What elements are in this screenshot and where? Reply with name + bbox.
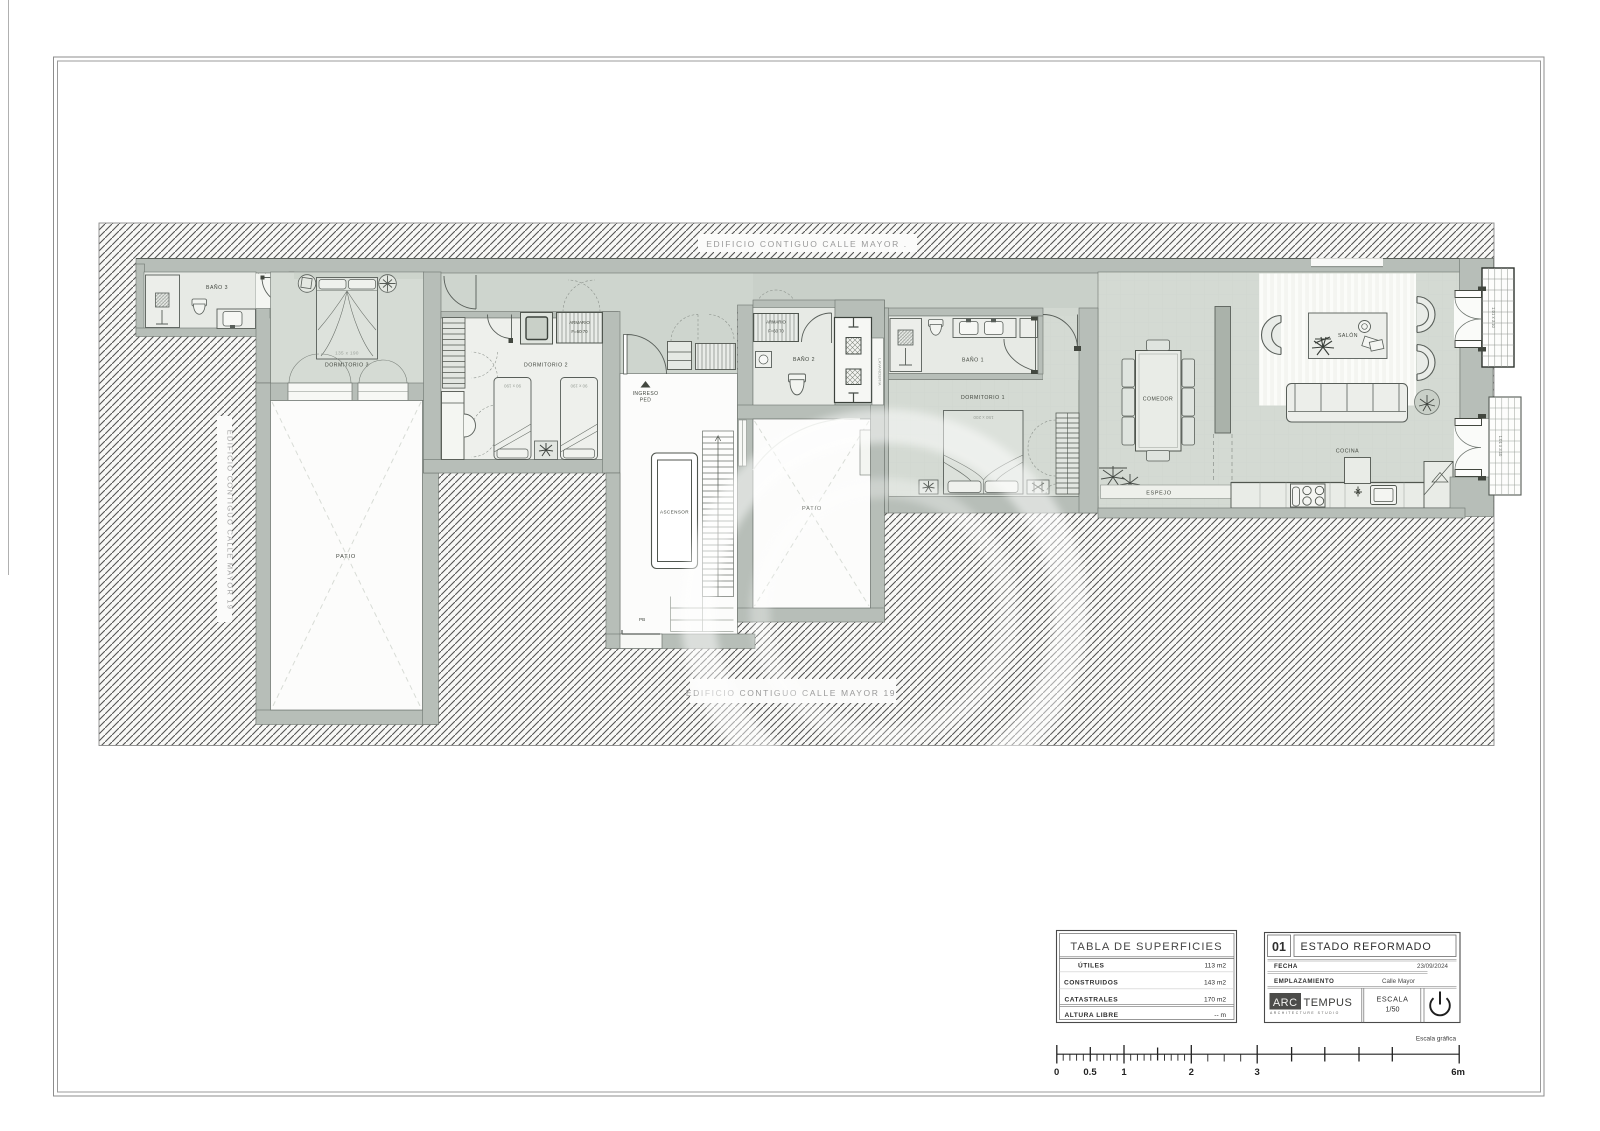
svg-text:BAÑO 3: BAÑO 3 <box>206 284 228 291</box>
svg-text:ARCHITECTURE STUDIO: ARCHITECTURE STUDIO <box>1270 1011 1340 1015</box>
svg-text:23/09/2024: 23/09/2024 <box>1417 963 1449 970</box>
svg-text:113 m2: 113 m2 <box>1204 963 1226 970</box>
svg-text:1.01 x 3.10: 1.01 x 3.10 <box>1491 307 1496 328</box>
svg-text:1: 1 <box>1121 1067 1127 1078</box>
svg-text:ESTADO REFORMADO: ESTADO REFORMADO <box>1301 941 1432 953</box>
svg-text:6m: 6m <box>1451 1067 1465 1078</box>
svg-text:0.5: 0.5 <box>1083 1067 1097 1078</box>
svg-text:ÚTILES: ÚTILES <box>1078 961 1105 970</box>
svg-text:-- m: -- m <box>1214 1012 1226 1019</box>
svg-text:LAVANDERIA: LAVANDERIA <box>878 358 883 386</box>
svg-text:90 x 190: 90 x 190 <box>570 384 587 389</box>
svg-text:143 m2: 143 m2 <box>1204 980 1226 987</box>
svg-text:F=60 70: F=60 70 <box>768 329 784 334</box>
svg-text:DORMITORIO 2: DORMITORIO 2 <box>524 363 568 369</box>
svg-text:INGRESO: INGRESO <box>633 391 659 397</box>
svg-text:Calle Mayor: Calle Mayor <box>1382 978 1415 985</box>
svg-text:ARMARIO: ARMARIO <box>569 320 590 325</box>
svg-text:ARC: ARC <box>1273 997 1298 1009</box>
svg-text:TEMPUS: TEMPUS <box>1304 997 1353 1009</box>
svg-text:ASCENSOR: ASCENSOR <box>660 510 689 515</box>
svg-text:2: 2 <box>1189 1067 1194 1078</box>
svg-text:135 x 190: 135 x 190 <box>335 351 359 356</box>
svg-text:PATIO: PATIO <box>336 554 356 560</box>
svg-text:1.01 x 3.10: 1.01 x 3.10 <box>1498 436 1503 457</box>
svg-text:0: 0 <box>1054 1067 1059 1078</box>
svg-text:01: 01 <box>1272 940 1286 954</box>
svg-text:PED: PED <box>640 398 651 404</box>
svg-text:EMPLAZAMIENTO: EMPLAZAMIENTO <box>1274 978 1334 985</box>
svg-text:COMEDOR: COMEDOR <box>1143 397 1174 403</box>
svg-text:EDIFICIO CONTIGUO CALLE MAYOR: EDIFICIO CONTIGUO CALLE MAYOR . <box>706 239 908 249</box>
svg-text:170 m2: 170 m2 <box>1204 997 1226 1004</box>
svg-text:150 x 200: 150 x 200 <box>973 415 994 420</box>
svg-text:1/50: 1/50 <box>1386 1005 1400 1014</box>
svg-text:SALÓN: SALÓN <box>1338 332 1358 339</box>
svg-text:CATASTRALES: CATASTRALES <box>1065 997 1119 1004</box>
svg-text:FECHA: FECHA <box>1274 963 1298 970</box>
svg-text:Escala gráfica: Escala gráfica <box>1416 1036 1457 1043</box>
svg-text:ESPEJO: ESPEJO <box>1146 491 1171 497</box>
svg-text:ALTURA LIBRE: ALTURA LIBRE <box>1065 1012 1119 1019</box>
svg-text:ARMARIO: ARMARIO <box>766 320 786 325</box>
svg-text:DORMITORIO 1: DORMITORIO 1 <box>961 395 1005 401</box>
svg-text:COCINA: COCINA <box>1336 449 1359 455</box>
svg-text:TABLA DE SUPERFICIES: TABLA DE SUPERFICIES <box>1070 941 1222 953</box>
svg-text:3: 3 <box>1255 1067 1260 1078</box>
svg-text:DORMITORIO 3: DORMITORIO 3 <box>325 363 369 369</box>
svg-text:ESCALA: ESCALA <box>1377 995 1409 1004</box>
svg-text:PB: PB <box>639 617 645 622</box>
svg-text:F=60 70: F=60 70 <box>571 329 588 334</box>
svg-text:EDIFICIO CONTIGUO CALLE MAYOR: EDIFICIO CONTIGUO CALLE MAYOR 19 <box>226 430 235 610</box>
svg-text:90 x 190: 90 x 190 <box>504 384 521 389</box>
svg-text:BAÑO 1: BAÑO 1 <box>962 357 984 364</box>
svg-text:BAÑO 2: BAÑO 2 <box>793 356 815 363</box>
svg-text:CONSTRUIDOS: CONSTRUIDOS <box>1064 980 1118 987</box>
